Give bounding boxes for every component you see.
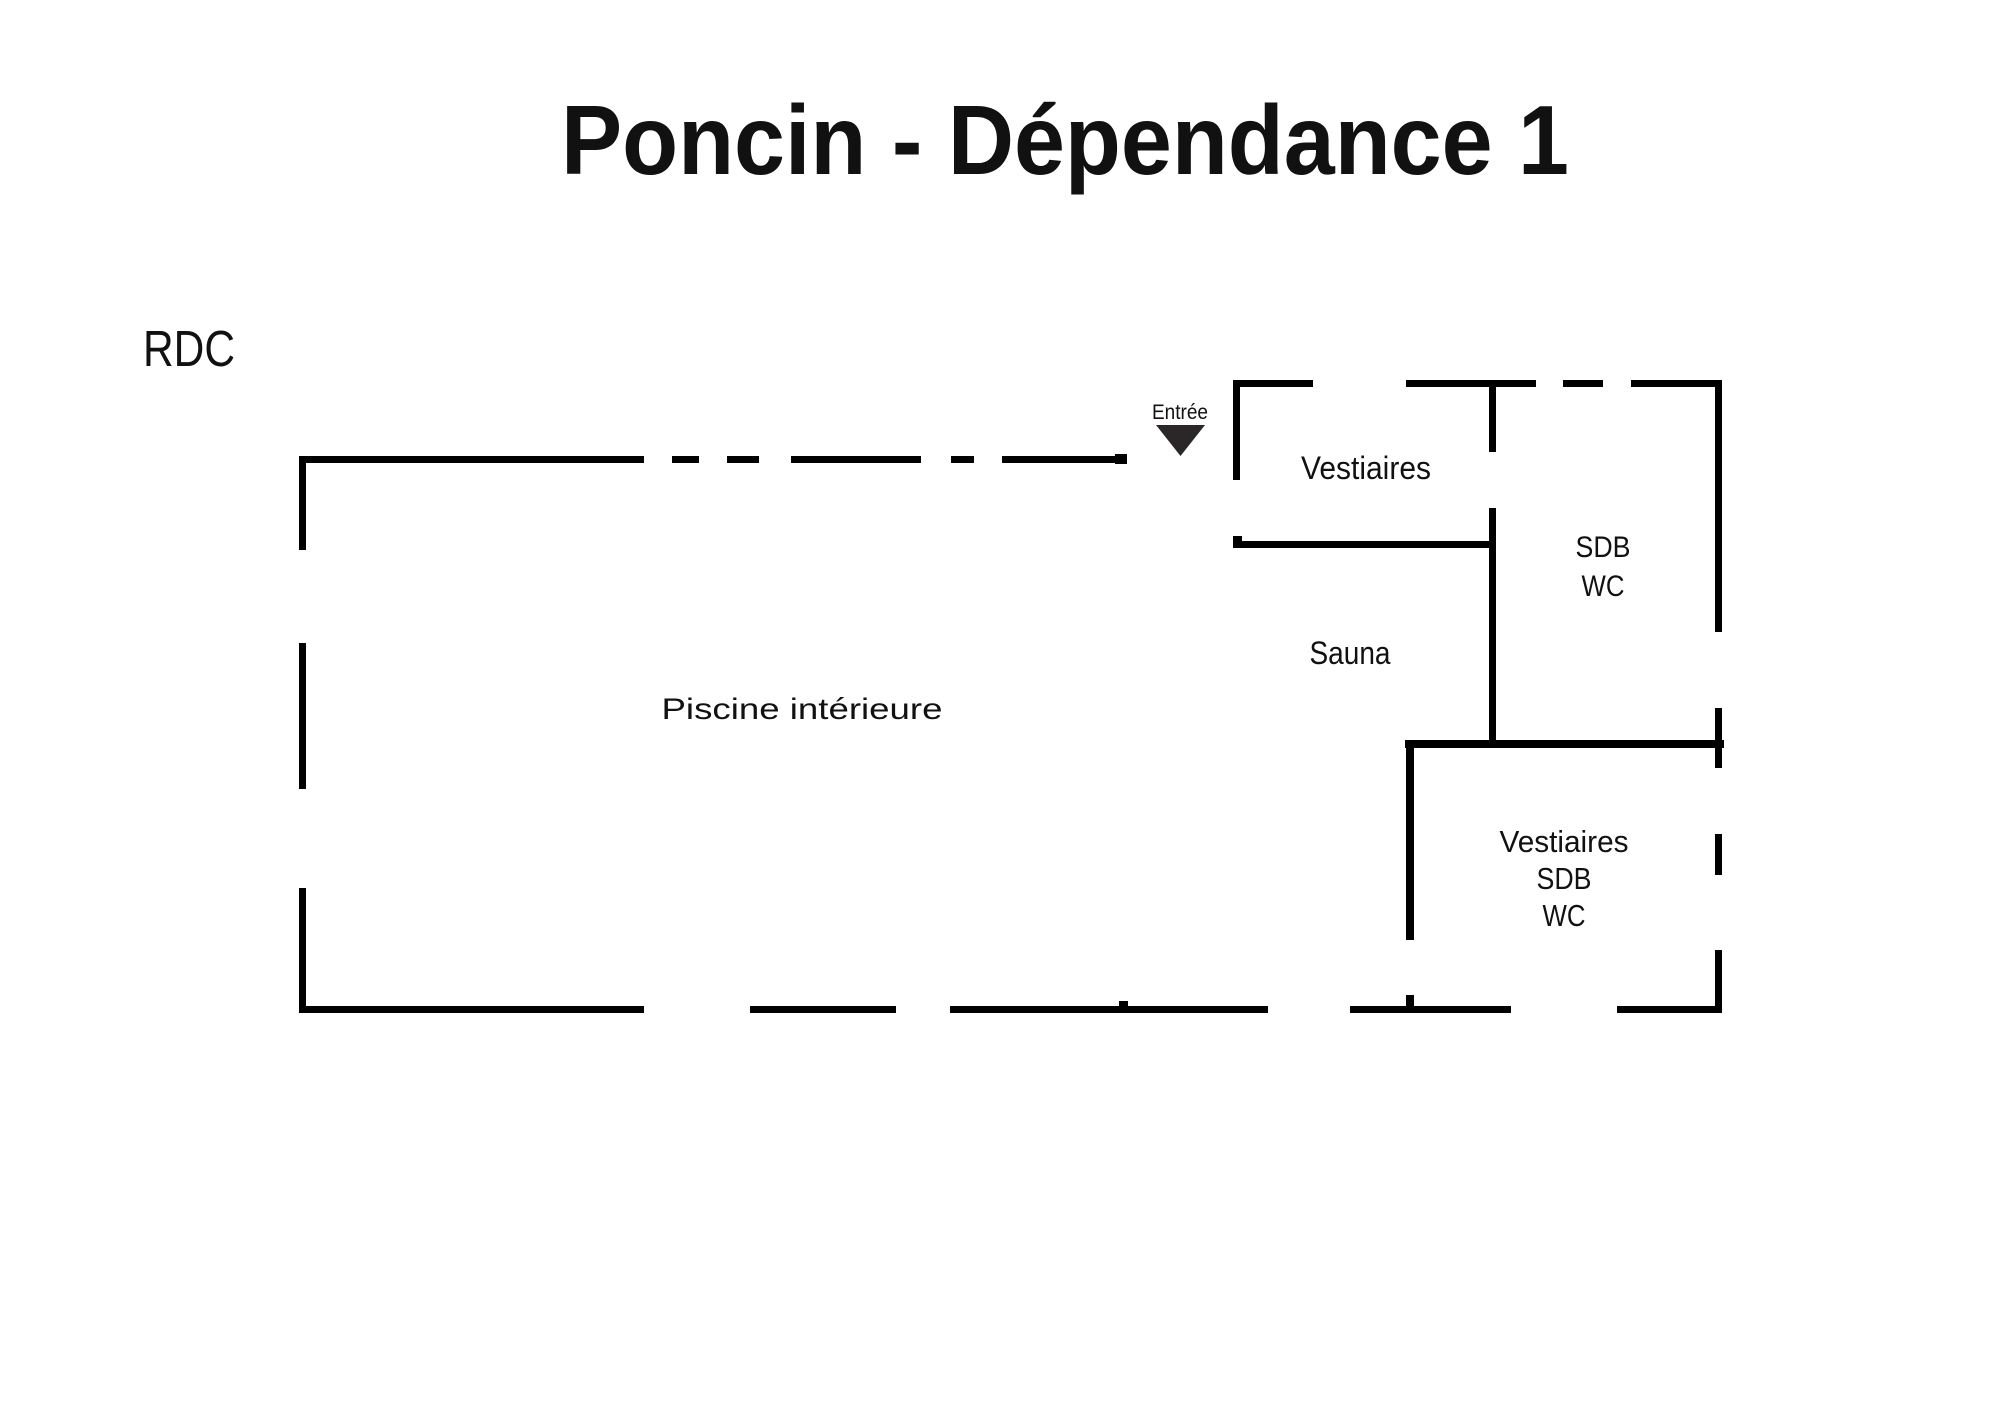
svg-text:Vestiaires: Vestiaires [1500, 824, 1629, 859]
svg-text:SDB: SDB [1576, 531, 1631, 564]
svg-text:RDC: RDC [143, 320, 235, 377]
svg-text:Poncin - Dépendance 1: Poncin - Dépendance 1 [561, 85, 1569, 195]
svg-text:WC: WC [1582, 570, 1625, 603]
svg-text:WC: WC [1543, 898, 1586, 933]
svg-text:Vestiaires: Vestiaires [1301, 450, 1431, 486]
svg-text:SDB: SDB [1537, 861, 1592, 896]
svg-text:Piscine intérieure: Piscine intérieure [662, 693, 943, 726]
svg-text:Entrée: Entrée [1152, 401, 1208, 424]
svg-text:Sauna: Sauna [1310, 635, 1391, 671]
